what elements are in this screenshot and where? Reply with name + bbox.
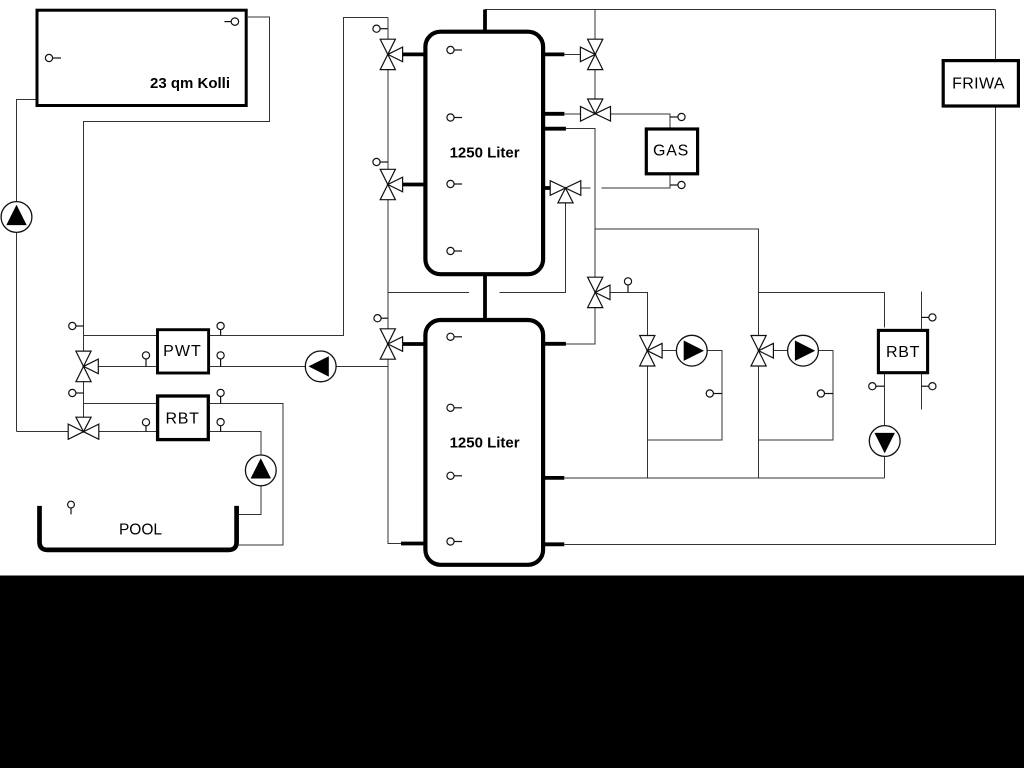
svg-text:1250 Liter: 1250 Liter: [450, 435, 520, 452]
svg-text:23 qm Kolli: 23 qm Kolli: [150, 75, 230, 92]
svg-text:1250 Liter: 1250 Liter: [450, 145, 520, 162]
svg-text:GAS: GAS: [653, 143, 689, 160]
svg-text:RBT: RBT: [166, 411, 200, 428]
svg-text:FRIWA: FRIWA: [952, 76, 1005, 93]
svg-text:PWT: PWT: [163, 343, 202, 360]
svg-text:POOL: POOL: [119, 522, 162, 539]
svg-text:RBT: RBT: [886, 344, 920, 361]
